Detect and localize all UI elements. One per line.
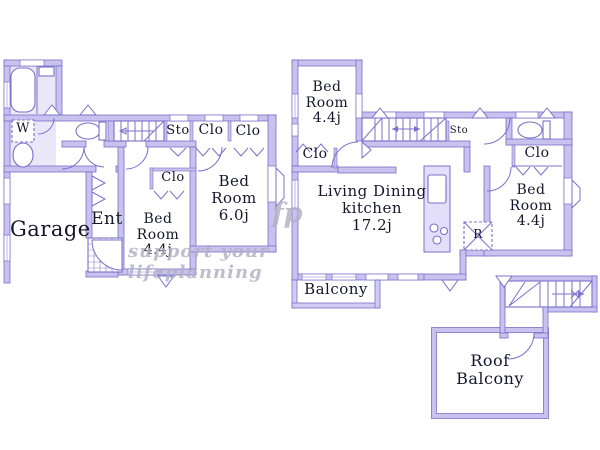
label-roof-balcony: Roof Balcony	[444, 352, 536, 388]
label-closet-bedroom-north: Clo	[296, 147, 334, 163]
label-closet-bedroom-1f: Clo	[152, 171, 194, 186]
staircase-2f	[362, 118, 446, 141]
staircase-1f	[114, 121, 164, 141]
label-refrigerator: R	[466, 228, 490, 241]
entrance-porch	[88, 238, 122, 272]
label-closet-hall-1: Clo	[194, 123, 228, 139]
room-label-entrance: Ent	[88, 210, 126, 229]
bathtub-icon	[11, 68, 35, 112]
label-storage-1f: Sto	[164, 124, 192, 139]
label-closet-hall-2: Clo	[231, 124, 265, 140]
bay-window-icon	[572, 180, 580, 208]
label-washing-machine: W	[13, 122, 33, 137]
room-label-bedroom-north-2f: Bed Room 4.4j	[296, 80, 358, 127]
label-storage-2f: Sto	[446, 125, 472, 136]
label-balcony: Balcony	[300, 281, 372, 298]
sink-basin-icon	[13, 143, 33, 167]
room-label-bedroom-large-1f: Bed Room 6.0j	[198, 173, 270, 223]
staircase-3f	[505, 281, 592, 307]
label-closet-bedroom-east: Clo	[516, 146, 558, 162]
watermark-tagline: support your lifeplanning	[128, 241, 388, 283]
room-label-garage: Garage	[10, 218, 90, 242]
floor3-plan	[432, 276, 598, 419]
toilet-1f-icon	[76, 122, 106, 140]
toilet-door-arc	[84, 147, 104, 167]
entrance-door-icon	[92, 176, 105, 206]
room-label-living-dining-kitchen: Living Dining kitchen 17.2j	[312, 183, 432, 233]
toilet-2f-icon	[518, 121, 550, 139]
floorplan-page: Garage Ent W Sto Clo Clo Bed Room 4.4j C…	[0, 0, 600, 450]
bedroom-large-door-arc	[198, 147, 222, 171]
watermark-logo: fp	[272, 198, 303, 229]
bedroom-small-door-arc	[126, 147, 148, 169]
room-label-bedroom-east-2f: Bed Room 4.4j	[498, 183, 564, 230]
